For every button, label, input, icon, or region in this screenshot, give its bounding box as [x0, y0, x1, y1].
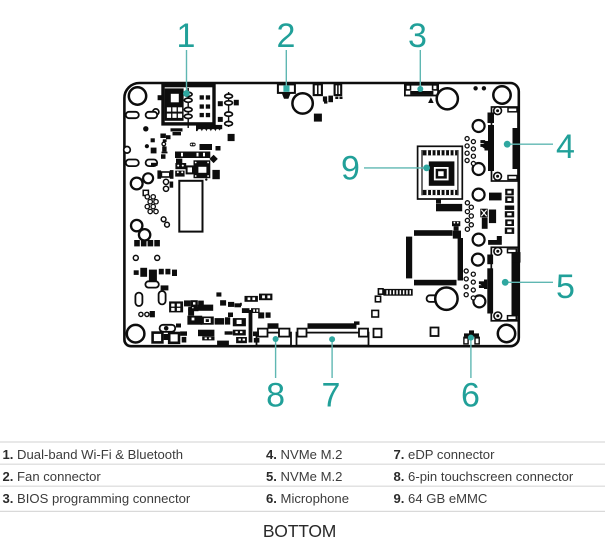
- svg-text:4. NVMe M.2: 4. NVMe M.2: [266, 447, 342, 462]
- svg-text:8: 8: [266, 377, 285, 415]
- svg-text:1. Dual-band Wi-Fi & Bluetooth: 1. Dual-band Wi-Fi & Bluetooth: [3, 447, 184, 462]
- svg-text:BOTTOM: BOTTOM: [263, 521, 336, 541]
- svg-text:6. Microphone: 6. Microphone: [266, 491, 349, 506]
- svg-text:5. NVMe M.2: 5. NVMe M.2: [266, 469, 342, 484]
- svg-text:2. Fan connector: 2. Fan connector: [3, 469, 102, 484]
- svg-text:4: 4: [556, 128, 575, 166]
- svg-text:7: 7: [322, 377, 341, 415]
- svg-text:3. BIOS programming connector: 3. BIOS programming connector: [3, 491, 191, 506]
- svg-text:6: 6: [461, 377, 480, 415]
- svg-text:7. eDP connector: 7. eDP connector: [394, 447, 496, 462]
- svg-text:8. 6-pin touchscreen connector: 8. 6-pin touchscreen connector: [394, 469, 574, 484]
- svg-text:2: 2: [277, 17, 296, 55]
- svg-text:9. 64 GB eMMC: 9. 64 GB eMMC: [394, 491, 488, 506]
- svg-text:1: 1: [177, 17, 196, 55]
- svg-text:5: 5: [556, 268, 575, 306]
- svg-text:3: 3: [408, 17, 427, 55]
- svg-text:9: 9: [341, 150, 360, 188]
